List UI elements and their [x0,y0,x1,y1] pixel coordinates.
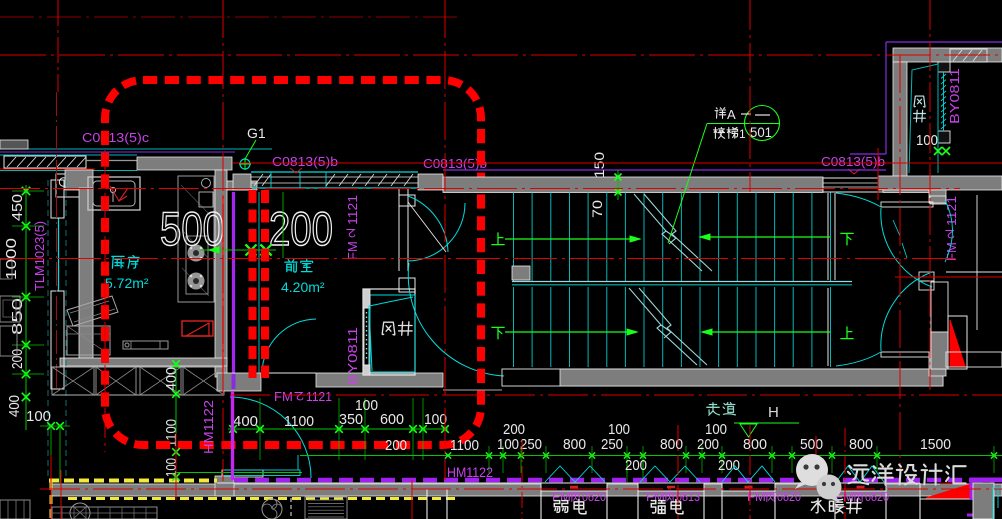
svg-text:A: A [727,107,736,122]
svg-text:500: 500 [160,202,224,255]
svg-text:1121: 1121 [345,195,360,225]
svg-text:800: 800 [849,436,873,453]
svg-text:100: 100 [497,436,519,453]
svg-text:HM1122: HM1122 [447,464,493,480]
svg-text:850: 850 [9,298,26,335]
svg-text:1100: 1100 [284,413,314,430]
svg-text:100: 100 [163,458,180,477]
svg-text:G1: G1 [247,125,266,141]
svg-text:1100: 1100 [450,437,479,454]
svg-text:200: 200 [503,421,525,438]
svg-text:501: 501 [750,124,772,140]
svg-text:200: 200 [269,202,333,255]
svg-text:250: 250 [520,436,542,453]
svg-text:C0813(5)c: C0813(5)c [82,130,150,145]
svg-text:400: 400 [233,413,258,430]
svg-text:500: 500 [800,436,823,453]
svg-text:H: H [768,404,779,421]
svg-text:BY0811: BY0811 [345,327,360,385]
svg-text:0820: 0820 [865,489,889,504]
svg-text:100: 100 [424,411,447,428]
svg-text:1: 1 [739,127,746,141]
svg-text:HM1122: HM1122 [201,400,216,454]
svg-text:1500: 1500 [920,436,951,453]
svg-text:200: 200 [718,457,740,474]
svg-text:600: 600 [380,411,404,428]
svg-text:200: 200 [9,349,26,369]
svg-text:400: 400 [6,395,23,417]
svg-text:C0813(5)b: C0813(5)b [821,154,885,169]
svg-text:BY0811: BY0811 [947,68,962,124]
svg-text:200: 200 [385,437,407,454]
svg-text:100: 100 [916,132,938,149]
svg-text:100: 100 [705,421,727,438]
svg-text:0820: 0820 [777,489,801,504]
svg-text:800: 800 [563,436,586,453]
svg-text:150: 150 [591,152,607,178]
svg-text:200: 200 [625,457,647,474]
svg-text:100: 100 [355,397,378,414]
svg-text:4.20m²: 4.20m² [281,279,325,295]
svg-text:250: 250 [601,436,623,453]
svg-text:100: 100 [608,421,630,438]
svg-text:C0813(5)b: C0813(5)b [272,154,338,169]
svg-text:FM: FM [345,241,360,260]
svg-text:800: 800 [660,436,683,453]
svg-text:5.72m²: 5.72m² [105,275,149,291]
svg-text:0820: 0820 [582,489,606,504]
svg-text:800: 800 [743,436,767,453]
svg-text:70: 70 [589,200,605,218]
svg-text:200: 200 [697,436,719,453]
svg-text:TLM1023(5): TLM1023(5) [32,221,47,291]
svg-text:1121: 1121 [306,389,332,404]
svg-text:450: 450 [9,194,26,221]
svg-text:FM: FM [274,389,293,404]
svg-text:400: 400 [163,367,180,391]
